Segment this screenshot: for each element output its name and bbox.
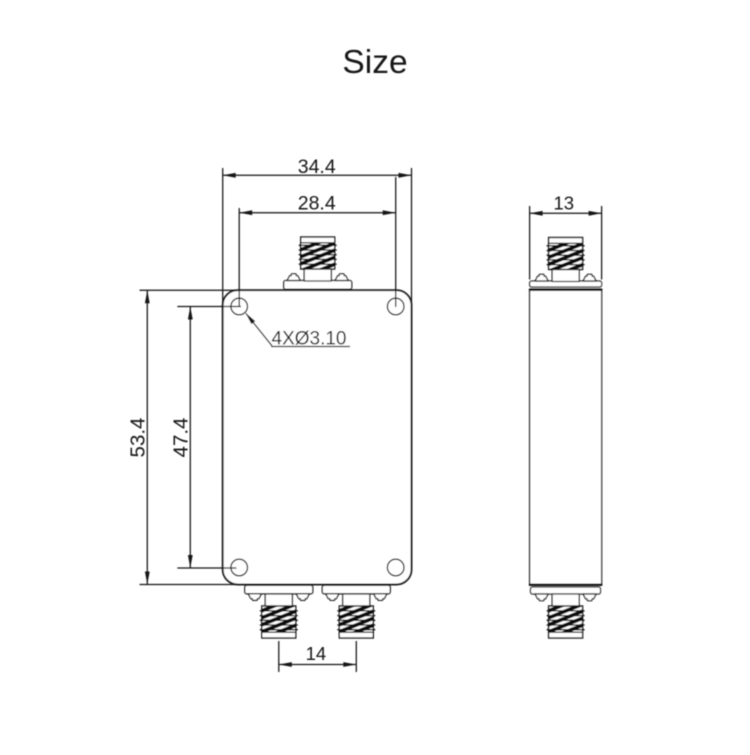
- svg-text:53.4: 53.4: [126, 418, 149, 458]
- svg-text:4XØ3.10: 4XØ3.10: [272, 329, 347, 350]
- svg-text:28.4: 28.4: [298, 193, 336, 215]
- svg-text:47.4: 47.4: [170, 418, 193, 458]
- svg-text:13: 13: [554, 193, 575, 214]
- svg-text:Size: Size: [342, 44, 407, 81]
- svg-text:34.4: 34.4: [298, 156, 336, 178]
- svg-text:14: 14: [306, 643, 327, 664]
